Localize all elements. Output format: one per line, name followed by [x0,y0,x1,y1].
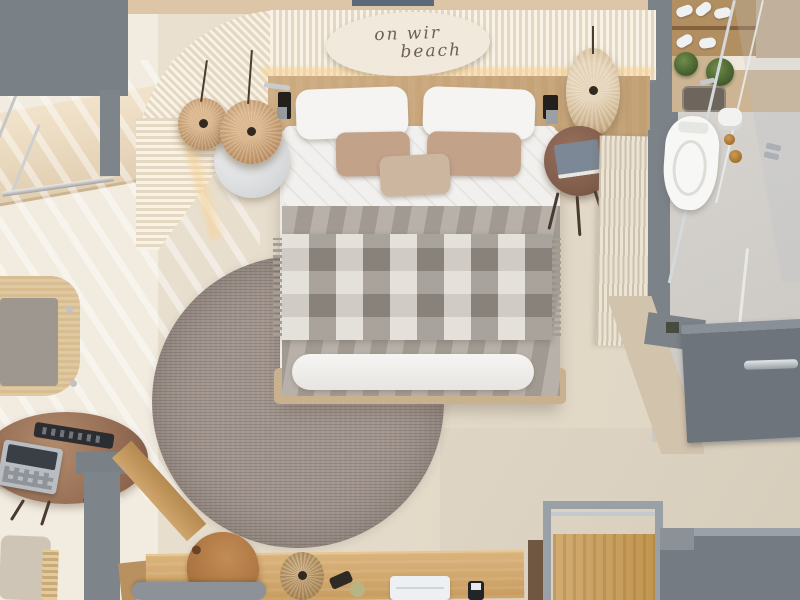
grey-chair [132,582,266,600]
lamp-finial [589,86,598,95]
pendant-lamp [566,48,620,136]
chair-foot [70,380,77,387]
tablet-keys [2,466,54,490]
throw-fringe [273,238,282,336]
book [554,139,602,179]
luggage-rack-frame [543,501,663,509]
flush-button [724,134,735,145]
chair-cushion [0,298,58,386]
jar [350,582,365,597]
room-render: on wir beach [0,0,800,600]
smartphone [468,581,484,600]
wall-pillar [84,472,120,600]
pendant-lamp [220,100,282,164]
luggage-rack-shelf [553,534,655,600]
lounge-chair [0,276,80,396]
chair-foot [66,306,73,313]
wall-jamb [100,90,120,176]
tablet [0,439,64,495]
phone-screen [471,583,481,590]
chair-knob [191,545,201,555]
throw-fringe [552,238,561,336]
sink [682,86,726,112]
plaid-throw [282,234,552,340]
woven-table-lamp [280,552,324,600]
chair-wicker-edge [41,550,59,600]
window-strip [352,0,434,6]
flush-button [729,150,742,163]
rolled-duvet [292,354,534,390]
laptop [390,576,450,600]
potted-plant [674,52,698,76]
small-accent-pillow [379,153,451,197]
luggage-rack-frame [543,501,551,600]
door-handle [744,359,798,370]
grey-cabinet [660,528,800,600]
luggage-rack-bar [551,512,655,516]
toilet-paper [718,108,742,130]
toilet-cistern [678,121,709,134]
laptop-hinge [396,587,444,589]
wall-top-left [0,0,128,96]
sign-text-line2: beach [400,42,462,62]
cabinet-step [660,528,694,550]
lamp-finial [247,127,256,136]
light-switch-right [546,110,558,124]
bathroom-door [681,319,800,443]
lamp-finial [298,571,307,580]
door-hinge [666,322,679,333]
lamp-cord [592,26,594,54]
toilet-seat [671,139,709,197]
lamp-finial [199,119,208,128]
